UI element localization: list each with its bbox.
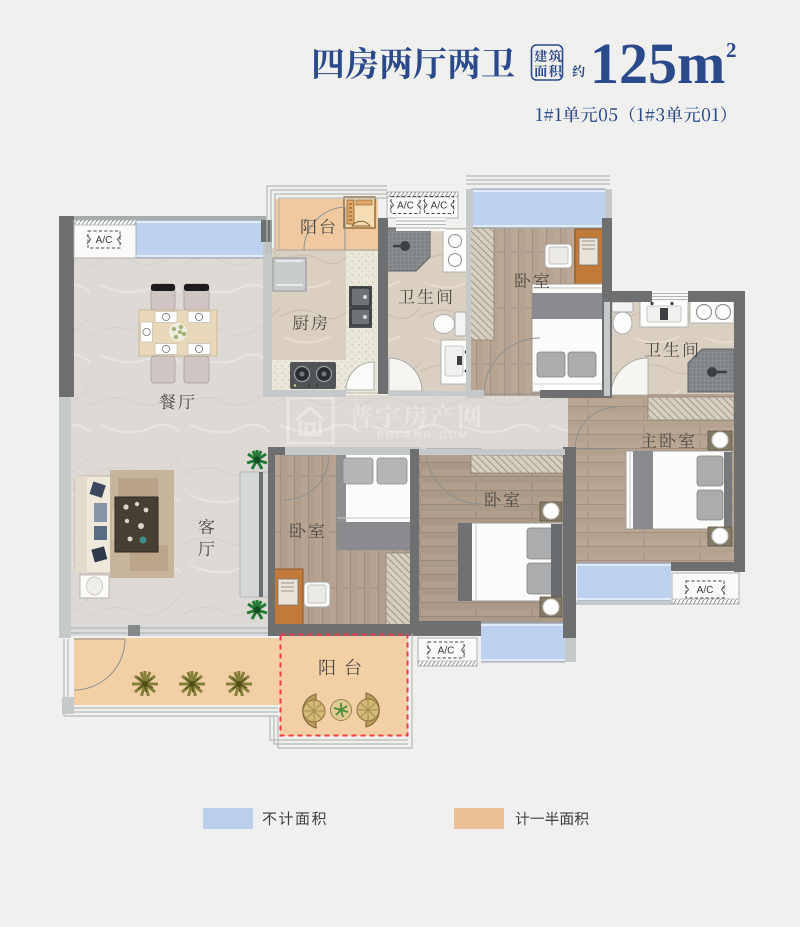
svg-text:A/C: A/C [96,235,113,246]
svg-text:A/C: A/C [697,585,714,596]
svg-text:PNFANG.COM: PNFANG.COM [377,430,470,441]
svg-text:A/C: A/C [438,646,455,657]
svg-text:125m: 125m [590,31,725,96]
svg-text:2: 2 [726,38,737,62]
svg-text:A/C: A/C [431,201,448,212]
svg-text:A/C: A/C [397,201,414,212]
